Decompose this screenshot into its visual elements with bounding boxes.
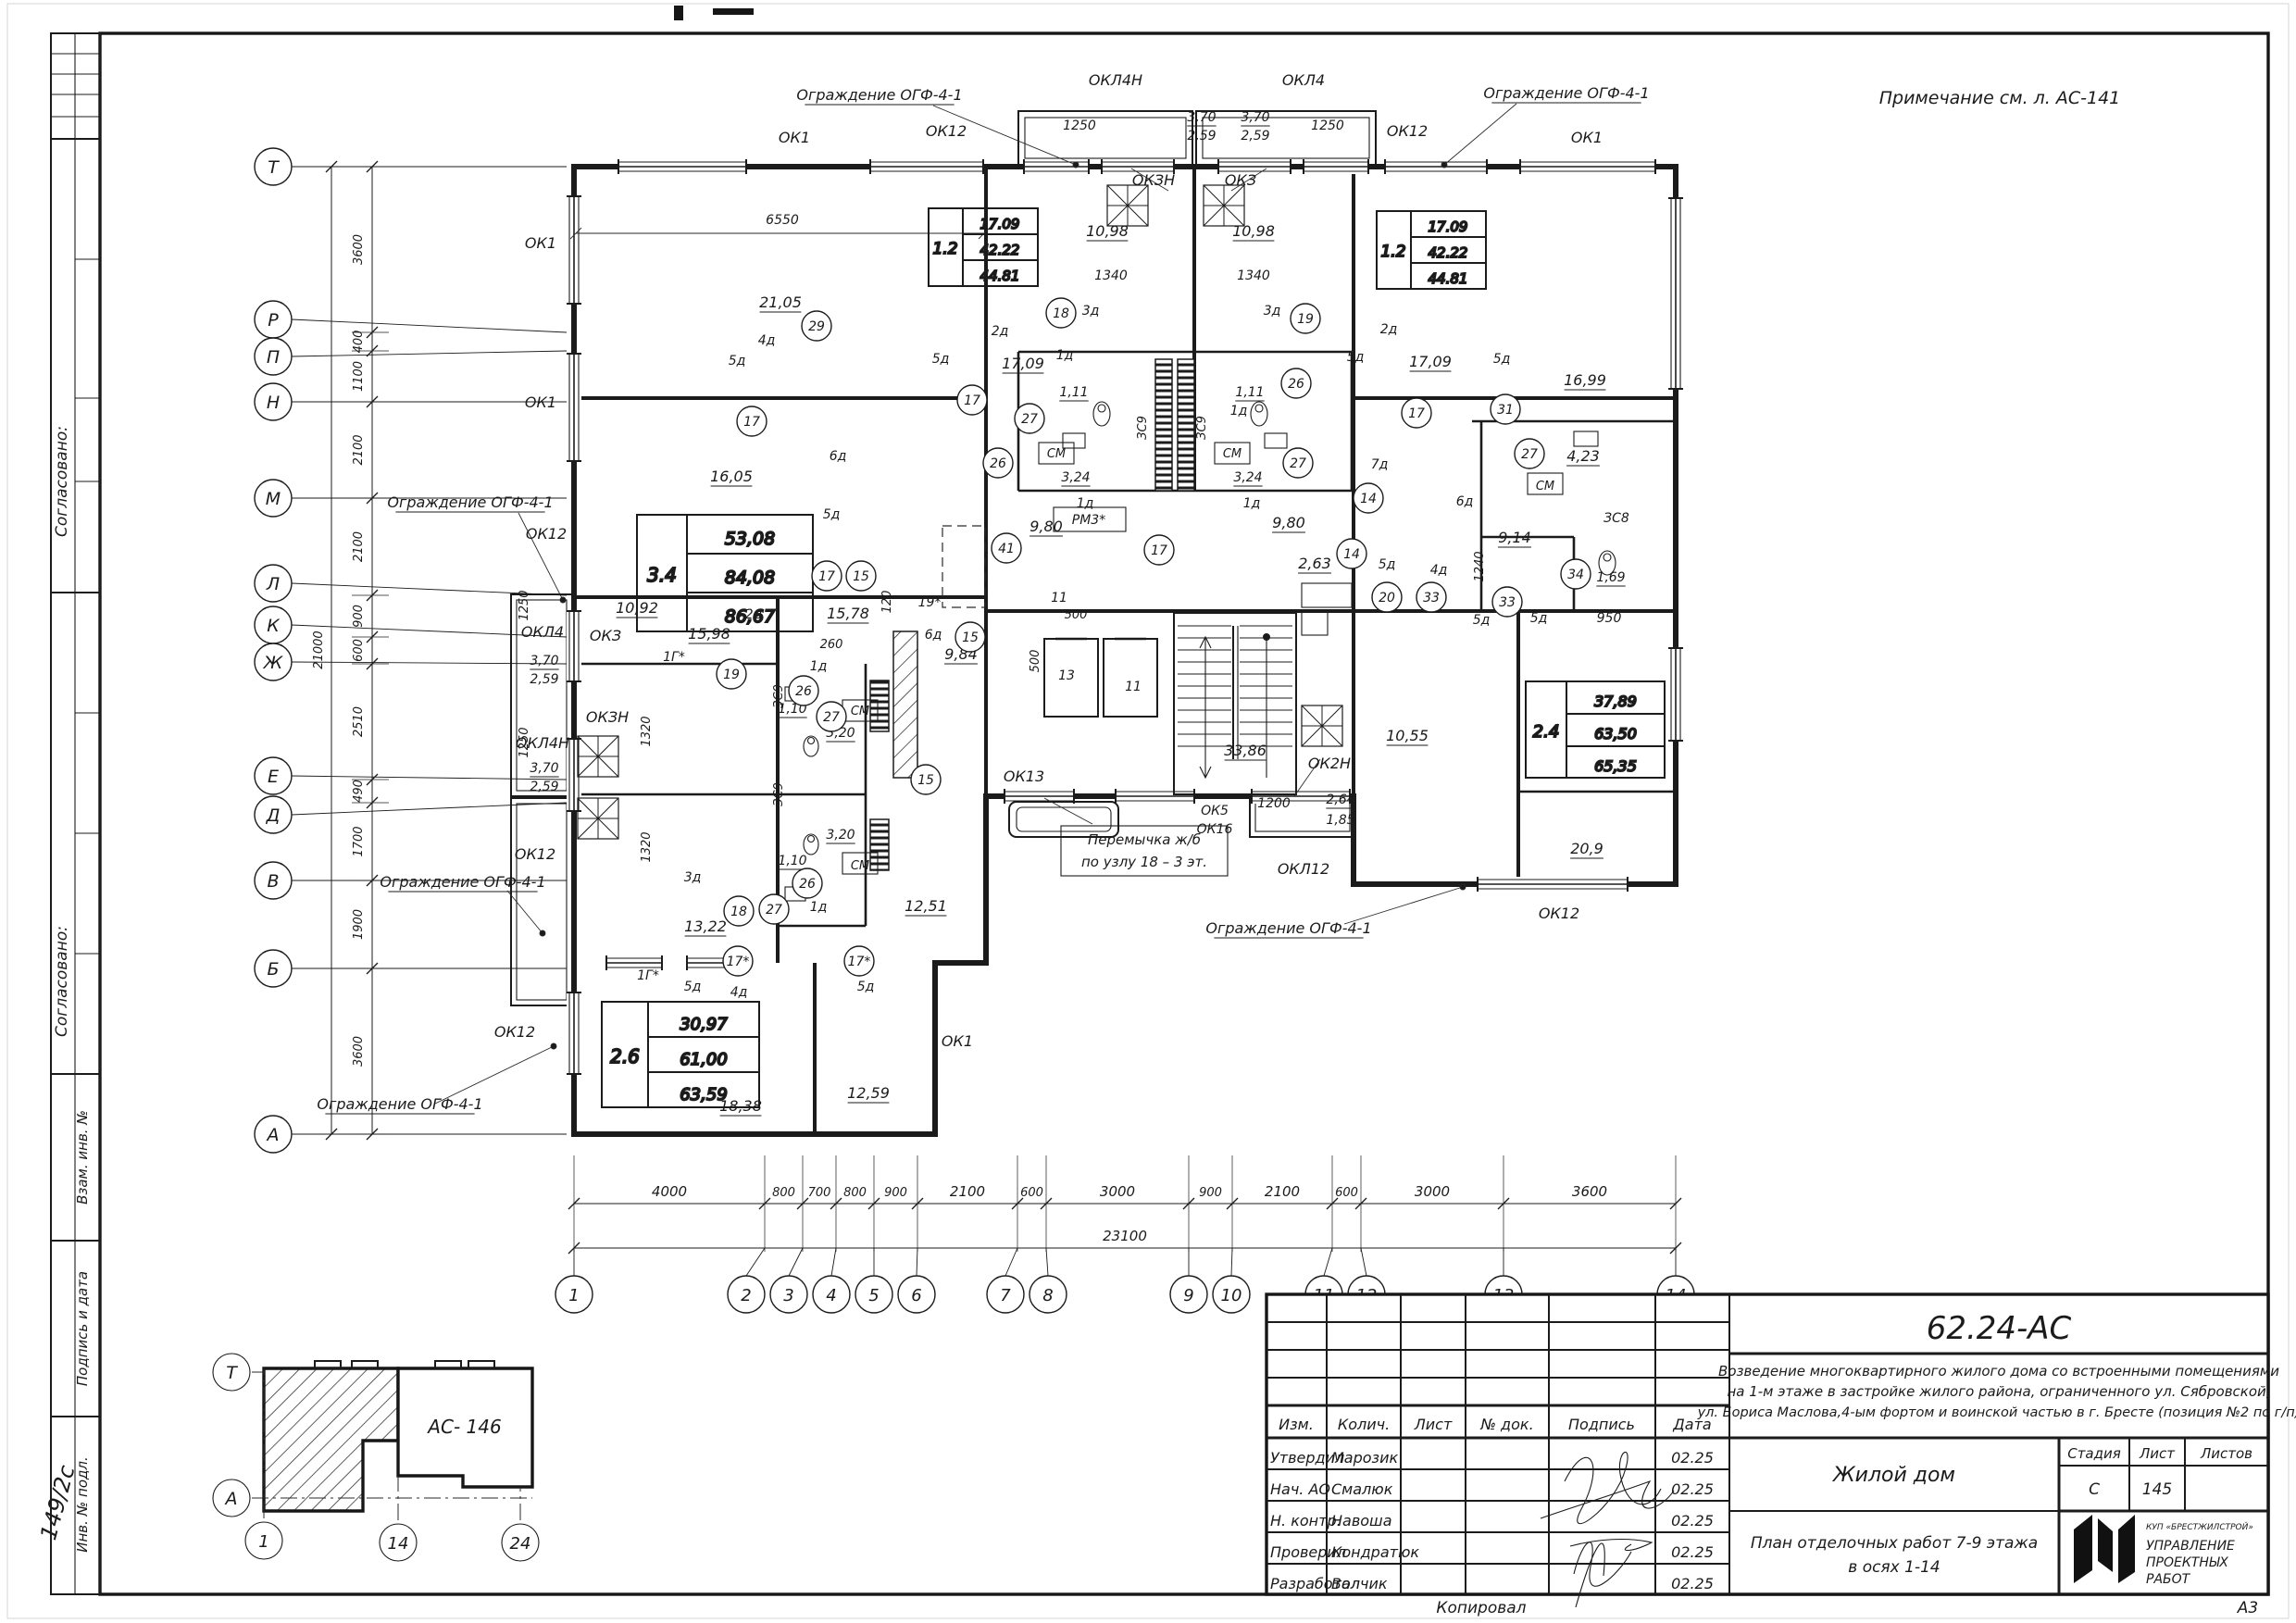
plan-label: 1,85 (1326, 813, 1354, 828)
plan-label: 5д (729, 354, 746, 368)
svg-text:Колич.: Колич. (1338, 1416, 1390, 1433)
svg-text:ПРОЕКТНЫХ: ПРОЕКТНЫХ (2146, 1555, 2228, 1570)
svg-text:02.25: 02.25 (1671, 1480, 1714, 1498)
plan-label: 10,92 (616, 599, 658, 617)
svg-text:2.6: 2.6 (610, 1045, 640, 1067)
plan-label: 9 (1183, 1286, 1193, 1305)
plan-label: ОК1 (525, 393, 556, 411)
plan-label: 1Г* (663, 650, 685, 665)
drawing-sheet: Согласовано: Согласовано: Взам. инв. № П… (0, 0, 2296, 1623)
plan-label: 1,10 (778, 854, 806, 868)
plan-label: Перемычка ж/б (1088, 831, 1201, 848)
svg-text:02.25: 02.25 (1671, 1543, 1714, 1561)
plan-label: 3,70 (1241, 110, 1269, 125)
plan-label: 3,70 (1187, 110, 1216, 125)
plan-label: ОКЛ4 (521, 623, 564, 641)
plan-label: 17 (743, 415, 760, 430)
plan-label: 1340 (1094, 268, 1128, 283)
plan-label: 6 (911, 1286, 921, 1305)
plan-label: 490 (352, 780, 366, 803)
plan-label: 18 (730, 905, 747, 919)
plan-label: 4д (730, 985, 748, 1000)
plan-label: ОК13 (1004, 768, 1044, 785)
svg-text:1.2: 1.2 (1380, 243, 1405, 261)
svg-text:02.25: 02.25 (1671, 1575, 1714, 1592)
plan-label: 1320 (640, 716, 654, 746)
svg-text:3.4: 3.4 (647, 564, 677, 586)
plan-label: СМ (1047, 447, 1066, 461)
plan-label: 3,24 (1233, 470, 1262, 485)
plan-label: 9,80 (1272, 514, 1305, 531)
plan-label: ОК1 (942, 1032, 973, 1050)
svg-text:44.81: 44.81 (980, 268, 1020, 284)
plan-label: 3000 (1100, 1183, 1135, 1200)
plan-label: 5д (684, 980, 702, 994)
plan-label: 21,05 (759, 293, 802, 311)
svg-text:2.4: 2.4 (1533, 722, 1560, 742)
plan-label: 3600 (352, 1036, 366, 1067)
plan-label: 1100 (352, 361, 366, 392)
plan-label: Н (267, 393, 280, 413)
plan-label: 2д (1380, 322, 1398, 337)
plan-label: 1240 (1473, 551, 1487, 581)
svg-text:в осях 1-14: в осях 1-14 (1848, 1558, 1940, 1577)
plan-label: 2 (741, 1286, 751, 1305)
plan-label: 3 (783, 1286, 793, 1305)
plan-label: 5д (857, 980, 875, 994)
plan-label: Л (266, 574, 280, 594)
agreed-label-1: Согласовано: (53, 426, 71, 537)
svg-text:Лист: Лист (2139, 1445, 2176, 1462)
plan-label: 10,98 (1086, 222, 1129, 240)
plan-label: 1200 (1257, 796, 1291, 811)
plan-label: П (267, 347, 280, 368)
svg-text:Марозик: Марозик (1331, 1449, 1398, 1467)
plan-label: СМ (1536, 480, 1554, 493)
plan-label: 1340 (1237, 268, 1270, 283)
plan-label: 17 (1151, 543, 1167, 558)
svg-text:Навоша: Навоша (1331, 1512, 1392, 1529)
svg-text:Волчик: Волчик (1331, 1575, 1388, 1592)
svg-text:24: 24 (510, 1534, 531, 1554)
plan-label: 14 (1360, 492, 1377, 506)
plan-label: 18 (1053, 306, 1069, 321)
plan-label: 11 (1125, 680, 1142, 694)
plan-label: К (267, 616, 281, 636)
plan-label: 23100 (1103, 1228, 1147, 1244)
plan-label: 1 (568, 1286, 579, 1305)
plan-label: 9,80 (1029, 518, 1063, 535)
plan-label: 800 (843, 1186, 867, 1200)
plan-label: 15,78 (827, 605, 869, 622)
plan-label: ОК1 (525, 234, 556, 252)
plan-label: 3,70 (530, 761, 558, 776)
svg-text:на 1-м этаже в застройке жилог: на 1-м этаже в застройке жилого района, … (1727, 1383, 2270, 1400)
plan-label: 2,64 (1326, 793, 1354, 807)
plan-label: СМ (851, 705, 869, 718)
plan-label: 900 (352, 605, 366, 628)
plan-label: 20,9 (1570, 840, 1603, 857)
svg-text:42.22: 42.22 (980, 242, 1020, 258)
plan-label: ЗС8 (1603, 511, 1629, 526)
plan-label: Ограждение ОГФ-4-1 (317, 1095, 482, 1113)
plan-label: ОК12 (494, 1023, 535, 1041)
plan-label: Т (268, 157, 280, 178)
plan-label: 3д (1082, 304, 1100, 318)
plan-label: 17 (1408, 406, 1425, 421)
plan-label: 1900 (352, 909, 366, 940)
plan-label: Ограждение ОГФ-4-1 (1483, 84, 1649, 102)
plan-label: 17,09 (1002, 355, 1044, 372)
svg-text:61,00: 61,00 (680, 1050, 728, 1069)
plan-label: 26 (990, 456, 1006, 471)
plan-label: 3,70 (530, 654, 558, 668)
plan-label: СМ (851, 859, 869, 873)
plan-label: 260 (820, 638, 843, 652)
svg-text:42.22: 42.22 (1429, 244, 1468, 261)
plan-label: 26 (799, 877, 816, 892)
plan-label: ЗС9 (1136, 416, 1150, 440)
plan-label: 10,55 (1386, 727, 1429, 744)
svg-text:Т: Т (226, 1363, 238, 1383)
keyplan-label: АС- 146 (426, 1416, 501, 1438)
doc-number: 62.24-АС (1927, 1310, 2072, 1347)
object-name: Жилой дом (1831, 1464, 1955, 1487)
plan-label: Ограждение ОГФ-4-1 (380, 873, 545, 891)
plan-label: 15,98 (688, 625, 730, 643)
plan-label: 14 (1343, 547, 1360, 562)
plan-label: 27 (766, 903, 782, 918)
plan-label: 1д (1243, 496, 1261, 511)
plan-label: 5д (823, 507, 841, 522)
plan-label: 15 (962, 630, 979, 645)
plan-label: 10 (1221, 1286, 1242, 1305)
plan-label: 4д (758, 333, 776, 348)
svg-text:Стадия: Стадия (2067, 1445, 2121, 1462)
plan-label: ЗС9 (772, 684, 786, 708)
plan-label: Б (267, 959, 279, 980)
svg-text:УПРАВЛЕНИЕ: УПРАВЛЕНИЕ (2146, 1539, 2235, 1554)
plan-label: 27 (1021, 412, 1038, 427)
plan-label: ОК12 (926, 122, 967, 140)
plan-label: 5д (932, 352, 950, 367)
plan-label: Ограждение ОГФ-4-1 (1205, 919, 1371, 937)
svg-text:63,50: 63,50 (1594, 725, 1637, 743)
svg-text:Изм.: Изм. (1279, 1416, 1314, 1433)
plan-label: 900 (1199, 1186, 1222, 1200)
plan-label: Р (268, 310, 279, 331)
plan-label: Ограждение ОГФ-4-1 (387, 493, 553, 511)
plan-label: 500 (1065, 608, 1088, 622)
plan-label: 33,86 (1224, 742, 1267, 759)
plan-label: 600 (1335, 1186, 1358, 1200)
plan-label: 16,05 (710, 468, 753, 485)
svg-text:Нач. АО: Нач. АО (1270, 1480, 1330, 1498)
plan-label: ОК2Н (1308, 755, 1351, 772)
svg-text:С: С (2089, 1480, 2100, 1499)
plan-label: 1Г* (637, 968, 659, 983)
plan-label: ОКЗН (1132, 171, 1175, 189)
plan-label: 2,59 (530, 780, 558, 794)
plan-label: 5д (1530, 611, 1548, 626)
plan-label: 5д (1473, 613, 1491, 628)
plan-label: 2,63 (1298, 555, 1331, 572)
plan-label: ОКЗ (590, 627, 621, 644)
plan-label: 400 (352, 331, 366, 354)
plan-label: 1250 (1311, 119, 1344, 133)
plan-label: 1д (810, 659, 828, 674)
plan-canvas: Согласовано: Согласовано: Взам. инв. № П… (0, 0, 2296, 1623)
plan-label: 33 (1499, 595, 1516, 610)
plan-label: 1320 (640, 831, 654, 862)
svg-text:Листов: Листов (2200, 1445, 2252, 1462)
plan-label: 21000 (312, 630, 326, 668)
svg-text:02.25: 02.25 (1671, 1512, 1714, 1529)
plan-label: 2100 (352, 531, 366, 562)
plan-label: 27 (1521, 447, 1538, 462)
plan-label: 3600 (1572, 1183, 1607, 1200)
plan-label: 9,14 (1498, 529, 1531, 546)
svg-text:65,35: 65,35 (1594, 757, 1637, 775)
plan-label: 2д (992, 324, 1009, 339)
plan-label: 26 (795, 684, 812, 699)
plan-label: 17 (818, 569, 835, 584)
plan-label: 1д (1077, 496, 1094, 511)
plan-label: 5д (1493, 352, 1511, 367)
svg-text:53,08: 53,08 (725, 529, 775, 549)
plan-label: 2100 (950, 1183, 985, 1200)
plan-label: 2510 (352, 706, 366, 737)
plan-label: 2100 (352, 434, 366, 465)
plan-label: Д (266, 805, 281, 826)
svg-text:Смалюк: Смалюк (1331, 1480, 1393, 1498)
plan-label: 950 (1597, 611, 1622, 626)
plan-label: 1д (810, 900, 828, 915)
svg-text:РАБОТ: РАБОТ (2146, 1572, 2191, 1587)
plan-label: 900 (884, 1186, 907, 1200)
svg-text:17.09: 17.09 (980, 216, 1020, 232)
plan-label: ОКЗ (1225, 171, 1256, 189)
plan-label: РМ3* (1072, 513, 1105, 528)
plan-label: 3д (684, 870, 702, 885)
svg-text:Кондратюк: Кондратюк (1331, 1543, 1419, 1561)
plan-label: 5д (1379, 557, 1396, 572)
svg-text:145: 145 (2142, 1480, 2172, 1499)
svg-text:02.25: 02.25 (1671, 1449, 1714, 1467)
plan-label: 700 (808, 1186, 831, 1200)
svg-text:Подпись: Подпись (1568, 1416, 1635, 1433)
plan-label: 2д (745, 607, 763, 622)
plan-label: 10,98 (1232, 222, 1275, 240)
copied-label: Копировал (1436, 1599, 1526, 1617)
plan-label: ОКЛ12 (1278, 860, 1329, 878)
plan-label: ОК12 (515, 845, 555, 863)
plan-label: ОК12 (1387, 122, 1428, 140)
plan-label: 12,51 (905, 897, 947, 915)
plan-label: ЗС9 (772, 782, 786, 806)
svg-text:84,08: 84,08 (725, 568, 775, 588)
plan-label: 31 (1497, 403, 1514, 418)
plan-label: 6д (1456, 494, 1474, 509)
svg-text:44.81: 44.81 (1429, 270, 1468, 287)
plan-label: 17 (964, 393, 980, 408)
plan-label: 1250 (1063, 119, 1096, 133)
plan-label: 34 (1567, 568, 1584, 582)
plan-label: М (266, 489, 281, 509)
plan-label: 500 (1029, 650, 1042, 673)
plan-label: ОК5 (1201, 804, 1229, 818)
plan-label: 6550 (766, 213, 799, 228)
plan-label: 1д (1056, 348, 1074, 363)
svg-text:30,97: 30,97 (680, 1015, 728, 1034)
plan-label: 1д (1230, 404, 1248, 418)
plan-label: 600 (352, 639, 366, 662)
format-label: А3 (2237, 1599, 2258, 1617)
plan-label: 26 (1288, 377, 1304, 392)
plan-label: 27 (823, 710, 840, 725)
agreed-label-2: Согласовано: (53, 926, 71, 1037)
svg-text:ул. Бориса Маслова,4-ым фортом: ул. Бориса Маслова,4-ым фортом и воинско… (1697, 1405, 2296, 1420)
plan-label: 3,24 (1061, 470, 1090, 485)
plan-label: 4000 (652, 1183, 687, 1200)
plan-label: 1,11 (1059, 385, 1088, 400)
svg-text:17.09: 17.09 (1429, 218, 1468, 235)
plan-label: 2,59 (1187, 129, 1216, 144)
plan-label: ОК1 (779, 129, 810, 146)
plan-label: 15 (853, 569, 869, 584)
plan-label: 3600 (352, 234, 366, 265)
plan-label: 120 (880, 591, 894, 614)
plan-label: 1250 (518, 590, 531, 620)
plan-label: 6д (830, 449, 847, 464)
plan-label: 2,59 (1241, 129, 1269, 144)
plan-label: 11 (1051, 591, 1067, 606)
plan-label: А (266, 1125, 280, 1145)
plan-label: Ж (263, 653, 284, 673)
plan-label: ОК1 (1571, 129, 1603, 146)
plan-label: 18,38 (719, 1097, 762, 1115)
plan-label: ОК12 (526, 525, 567, 543)
note-top-right: Примечание см. л. АС-141 (1879, 88, 2121, 108)
plan-label: ОКЛ4 (1282, 71, 1325, 89)
plan-label: ОКЗН (586, 708, 629, 726)
svg-text:1.2: 1.2 (932, 240, 957, 258)
plan-label: СМ (1223, 447, 1242, 461)
plan-label: 19 (1297, 312, 1314, 327)
plan-label: ОКЛ4Н (516, 734, 569, 752)
plan-label: Ограждение ОГФ-4-1 (796, 86, 962, 104)
plan-label: ЗС9 (1195, 416, 1209, 440)
plan-label: 4 (826, 1286, 836, 1305)
plan-label: 800 (772, 1186, 795, 1200)
plan-label: 600 (1020, 1186, 1043, 1200)
svg-text:37,89: 37,89 (1594, 693, 1637, 710)
plan-label: 16,99 (1564, 371, 1606, 389)
plan-label: 1,69 (1596, 570, 1625, 585)
plan-label: 12,59 (847, 1084, 890, 1102)
plan-label: 17,09 (1409, 353, 1452, 370)
svg-text:План отделочных работ 7-9 этаж: План отделочных работ 7-9 этажа (1751, 1534, 2038, 1553)
plan-label: 13 (1058, 668, 1075, 683)
plan-label: 1700 (352, 826, 366, 856)
plan-label: 2,59 (530, 672, 558, 687)
plan-label: 4д (1430, 563, 1448, 578)
podpis-data-label: Подпись и дата (74, 1271, 91, 1386)
plan-label: 19* (918, 595, 942, 610)
plan-label: Е (268, 767, 279, 787)
plan-label: 17* (848, 955, 871, 969)
plan-label: 8 (1042, 1286, 1053, 1305)
plan-label: 5 (868, 1286, 879, 1305)
svg-text:КУП «БРЕСТЖИЛСТРОЙ»: КУП «БРЕСТЖИЛСТРОЙ» (2146, 1521, 2253, 1532)
plan-label: 3,20 (826, 828, 855, 843)
plan-label: 3000 (1415, 1183, 1450, 1200)
plan-label: 19 (723, 668, 740, 682)
plan-label: 3д (1264, 304, 1281, 318)
plan-label: ОКЛ4Н (1089, 71, 1142, 89)
svg-text:14: 14 (388, 1534, 409, 1554)
plan-label: ОК12 (1539, 905, 1579, 922)
svg-text:1: 1 (258, 1532, 268, 1552)
plan-label: 7 (1000, 1286, 1011, 1305)
plan-label: 4,23 (1566, 447, 1600, 465)
vzam-inv-label: Взам. инв. № (74, 1110, 91, 1205)
plan-label: 29 (808, 319, 825, 334)
plan-label: 5д (1347, 350, 1365, 365)
plan-label: 7д (1371, 457, 1389, 472)
plan-label: В (267, 871, 279, 892)
plan-label: ОК16 (1197, 822, 1233, 837)
plan-label: 2100 (1265, 1183, 1300, 1200)
svg-text:А: А (224, 1489, 238, 1509)
plan-label: 27 (1290, 456, 1306, 471)
svg-text:№ док.: № док. (1479, 1416, 1533, 1433)
plan-label: 15 (917, 773, 934, 788)
plan-label: 20 (1379, 591, 1395, 606)
plan-label: по узлу 18 – 3 эт. (1081, 854, 1207, 870)
svg-text:Лист: Лист (1414, 1416, 1453, 1433)
title-block: Изм. Колич. Лист № док. Подпись Дата Утв… (1267, 1294, 2296, 1617)
plan-label: 41 (998, 542, 1015, 556)
plan-label: 6д (925, 628, 942, 643)
svg-text:Возведение многоквартирного жи: Возведение многоквартирного жилого дома … (1718, 1363, 2279, 1380)
plan-label: 13,22 (684, 918, 727, 935)
plan-label: 1,11 (1235, 385, 1264, 400)
plan-label: 17* (727, 955, 750, 969)
plan-label: 33 (1423, 591, 1440, 606)
